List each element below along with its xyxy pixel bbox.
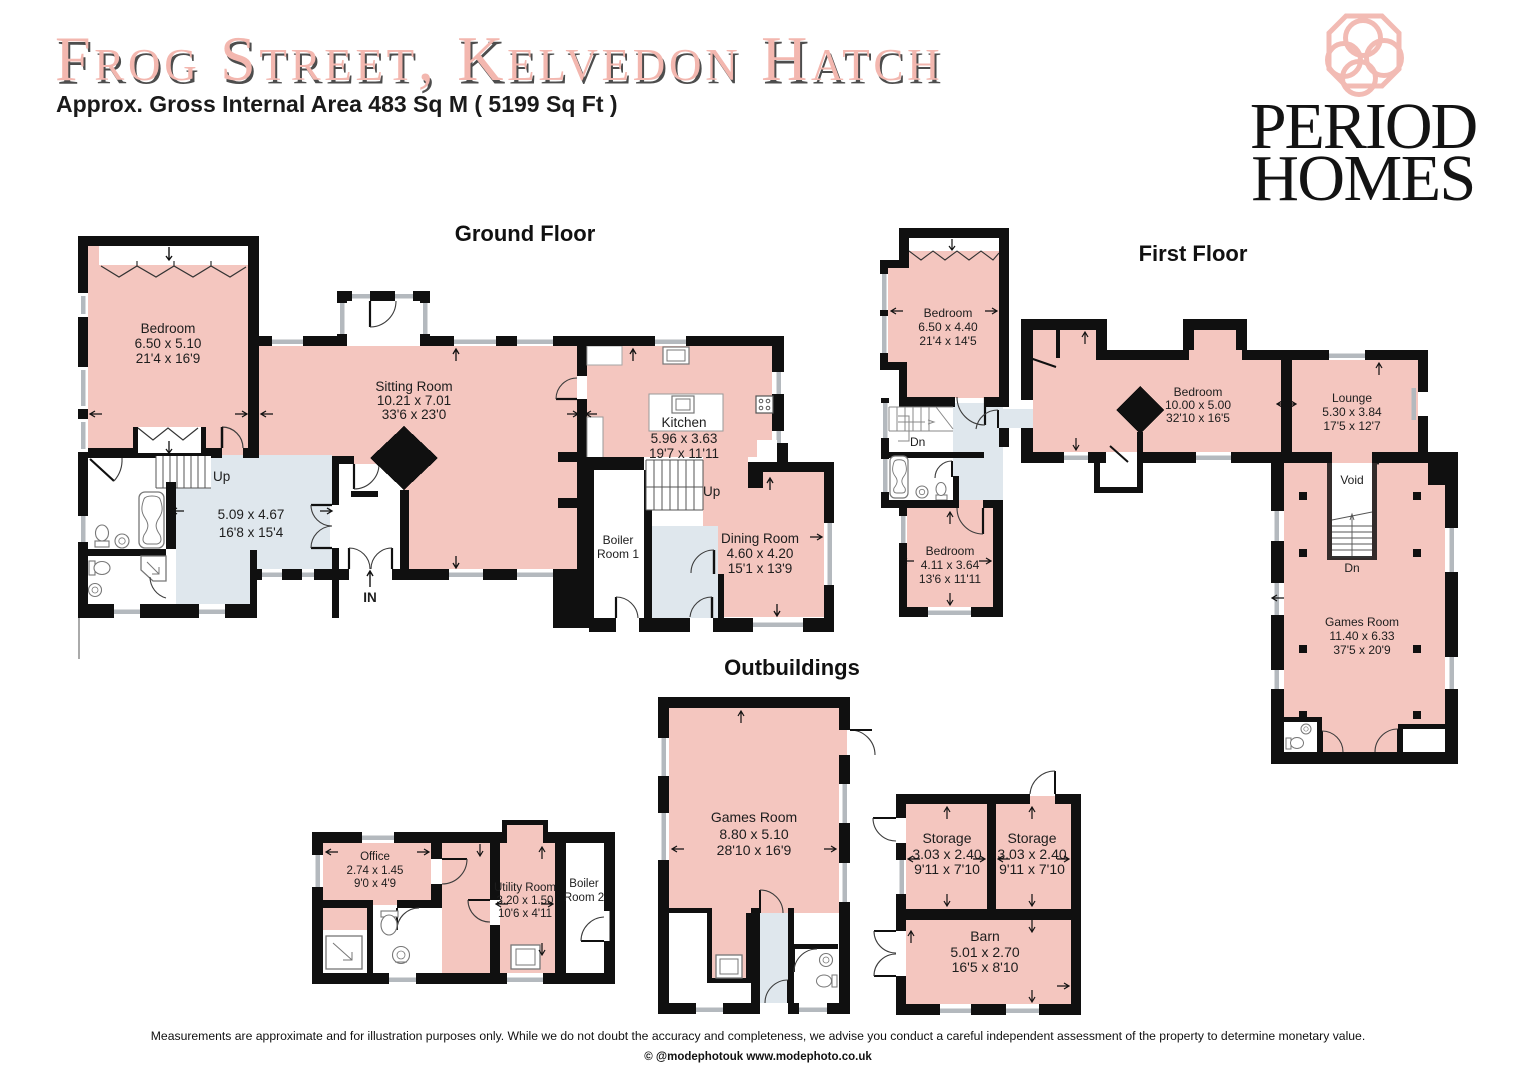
svg-text:Frog Street, Kelvedon Hatch: Frog Street, Kelvedon Hatch xyxy=(55,23,943,94)
svg-text:6.50 x 5.10: 6.50 x 5.10 xyxy=(135,336,202,351)
svg-text:9'11 x 7'10: 9'11 x 7'10 xyxy=(999,861,1065,877)
svg-text:Room 1: Room 1 xyxy=(597,547,639,561)
svg-text:5.01 x 2.70: 5.01 x 2.70 xyxy=(950,944,1019,960)
svg-text:21'4 x 14'5: 21'4 x 14'5 xyxy=(919,334,977,348)
svg-text:21'4 x 16'9: 21'4 x 16'9 xyxy=(136,351,200,366)
svg-text:Barn: Barn xyxy=(970,928,1000,944)
svg-text:Measurements are approximate a: Measurements are approximate and for ill… xyxy=(151,1029,1365,1043)
svg-text:15'1 x 13'9: 15'1 x 13'9 xyxy=(728,561,792,576)
svg-text:10'6 x 4'11: 10'6 x 4'11 xyxy=(498,908,552,920)
svg-text:Dn: Dn xyxy=(910,435,925,449)
svg-text:5.96 x 3.63: 5.96 x 3.63 xyxy=(651,431,718,446)
svg-text:Games Room: Games Room xyxy=(1325,615,1399,629)
svg-text:2.74 x 1.45: 2.74 x 1.45 xyxy=(347,865,404,877)
svg-text:Up: Up xyxy=(703,484,720,499)
svg-text:28'10 x 16'9: 28'10 x 16'9 xyxy=(717,842,792,858)
svg-text:32'10 x 16'5: 32'10 x 16'5 xyxy=(1166,411,1230,425)
svg-text:Office: Office xyxy=(360,851,390,863)
svg-text:13'6 x 11'11: 13'6 x 11'11 xyxy=(919,572,982,586)
svg-text:8.80 x 5.10: 8.80 x 5.10 xyxy=(719,826,788,842)
svg-text:Bedroom: Bedroom xyxy=(924,306,973,320)
svg-text:Sitting Room: Sitting Room xyxy=(375,379,452,394)
svg-text:IN: IN xyxy=(363,590,377,605)
svg-text:17'5 x 12'7: 17'5 x 12'7 xyxy=(1323,419,1381,433)
svg-text:5.09 x 4.67: 5.09 x 4.67 xyxy=(218,507,285,522)
svg-text:9'11 x 7'10: 9'11 x 7'10 xyxy=(914,861,980,877)
svg-text:16'8 x 15'4: 16'8 x 15'4 xyxy=(219,525,284,540)
svg-text:33'6 x 23'0: 33'6 x 23'0 xyxy=(382,407,446,422)
svg-text:11.40 x 6.33: 11.40 x 6.33 xyxy=(1329,629,1394,643)
svg-text:Boiler: Boiler xyxy=(603,533,634,547)
svg-text:First Floor: First Floor xyxy=(1139,241,1248,266)
svg-text:10.00 x 5.00: 10.00 x 5.00 xyxy=(1165,398,1231,412)
svg-text:5.30 x 3.84: 5.30 x 3.84 xyxy=(1322,405,1382,419)
svg-text:Approx. Gross Internal Area 48: Approx. Gross Internal Area 483 Sq M ( 5… xyxy=(56,91,618,117)
svg-text:9'0 x 4'9: 9'0 x 4'9 xyxy=(354,878,396,890)
svg-text:4.11 x 3.64: 4.11 x 3.64 xyxy=(921,558,980,572)
svg-text:3.20 x 1.50: 3.20 x 1.50 xyxy=(497,895,554,907)
svg-text:10.21 x 7.01: 10.21 x 7.01 xyxy=(377,393,451,408)
svg-text:4.60 x 4.20: 4.60 x 4.20 xyxy=(727,546,794,561)
svg-text:Bedroom: Bedroom xyxy=(926,544,975,558)
svg-text:Bedroom: Bedroom xyxy=(1174,385,1223,399)
svg-text:Dining Room: Dining Room xyxy=(721,531,799,546)
svg-text:19'7 x 11'11: 19'7 x 11'11 xyxy=(649,446,719,461)
svg-text:Storage: Storage xyxy=(1007,830,1056,846)
svg-text:Ground Floor: Ground Floor xyxy=(455,221,596,246)
svg-text:Kitchen: Kitchen xyxy=(661,415,706,430)
svg-text:Bedroom: Bedroom xyxy=(141,321,196,336)
svg-text:3.03 x 2.40: 3.03 x 2.40 xyxy=(912,846,981,862)
svg-text:Void: Void xyxy=(1340,473,1363,487)
svg-text:Up: Up xyxy=(213,469,230,484)
svg-text:Lounge: Lounge xyxy=(1332,391,1372,405)
svg-text:37'5 x 20'9: 37'5 x 20'9 xyxy=(1333,643,1391,657)
svg-text:Room 2: Room 2 xyxy=(564,892,604,904)
svg-text:Games Room: Games Room xyxy=(711,809,797,825)
svg-text:HOMES: HOMES xyxy=(1251,142,1475,215)
svg-text:Utility Room: Utility Room xyxy=(494,882,556,894)
svg-text:© @modephotouk www.modephoto.c: © @modephotouk www.modephoto.co.uk xyxy=(644,1051,872,1063)
svg-text:6.50 x 4.40: 6.50 x 4.40 xyxy=(918,320,978,334)
svg-text:16'5 x 8'10: 16'5 x 8'10 xyxy=(952,959,1019,975)
svg-text:Outbuildings: Outbuildings xyxy=(724,655,860,680)
svg-text:Dn: Dn xyxy=(1344,561,1359,575)
svg-text:Storage: Storage xyxy=(922,830,971,846)
svg-text:Boiler: Boiler xyxy=(569,878,599,890)
